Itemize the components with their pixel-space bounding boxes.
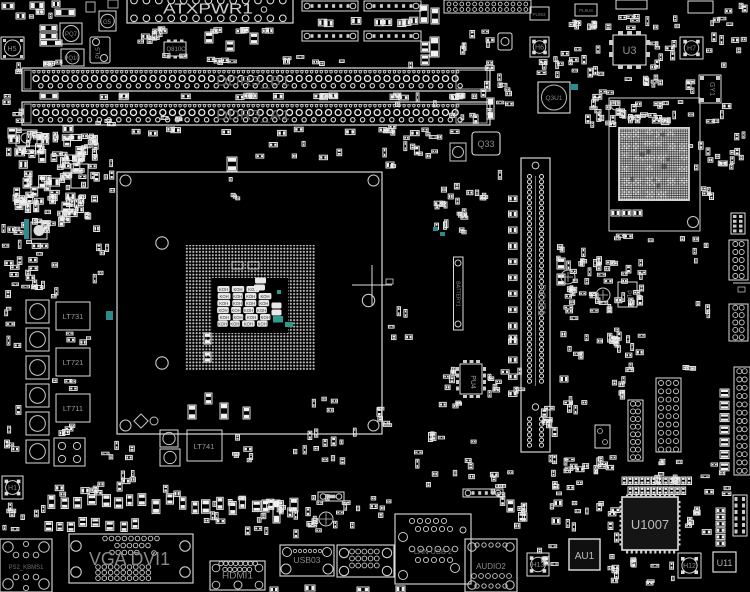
svg-text:KOH: KOH — [246, 301, 255, 306]
svg-text:PL993: PL993 — [532, 12, 546, 17]
svg-text:KOH: KOH — [258, 321, 267, 326]
svg-text:Q3U1: Q3U1 — [546, 95, 563, 102]
svg-text:H13: H13 — [532, 562, 545, 569]
svg-text:HDMI1: HDMI1 — [222, 571, 253, 581]
svg-text:KOH: KOH — [247, 315, 256, 320]
svg-text:KOH: KOH — [244, 321, 253, 326]
svg-text:U11: U11 — [717, 558, 733, 568]
svg-text:KOH: KOH — [230, 321, 239, 326]
svg-text:PL9U8: PL9U8 — [579, 8, 593, 13]
svg-text:USB03: USB03 — [294, 555, 321, 565]
svg-text:LAN USB 2: LAN USB 2 — [414, 547, 452, 556]
svg-text:KOH: KOH — [259, 301, 268, 306]
svg-text:GY1: GY1 — [708, 82, 715, 96]
svg-text:AUDIO2: AUDIO2 — [476, 562, 506, 571]
svg-text:KOH: KOH — [233, 287, 242, 292]
svg-text:KOH: KOH — [233, 294, 242, 299]
svg-text:KOH: KOH — [233, 301, 242, 306]
svg-text:H7: H7 — [687, 46, 696, 53]
svg-text:KOH: KOH — [219, 301, 228, 306]
svg-text:LT731: LT731 — [63, 312, 84, 321]
svg-text:KOH: KOH — [244, 308, 253, 313]
svg-text:PS2_KBMS1: PS2_KBMS1 — [8, 565, 44, 571]
svg-text:Q810C: Q810C — [166, 47, 186, 53]
svg-text:H6: H6 — [535, 45, 544, 52]
svg-text:KOH: KOH — [261, 315, 270, 320]
svg-text:PQ10: PQ10 — [64, 56, 80, 62]
svg-text:LT711: LT711 — [63, 404, 83, 413]
svg-text:KOH: KOH — [218, 321, 227, 326]
svg-text:PU4: PU4 — [469, 375, 476, 389]
svg-text:KOH: KOH — [257, 308, 266, 313]
svg-text:U3: U3 — [622, 45, 636, 57]
svg-text:KOH: KOH — [260, 294, 269, 299]
svg-text:BATTERY1: BATTERY1 — [455, 281, 461, 307]
svg-text:H5: H5 — [8, 46, 17, 53]
svg-text:PCIE1: PCIE1 — [535, 284, 547, 316]
svg-text:KOH: KOH — [233, 315, 242, 320]
svg-text:ATXPWR1: ATXPWR1 — [163, 1, 253, 18]
svg-text:KOH: KOH — [220, 315, 229, 320]
svg-text:VGA DVI1: VGA DVI1 — [89, 549, 170, 569]
svg-text:DDR3_A1: DDR3_A1 — [216, 107, 290, 123]
svg-text:KOH: KOH — [220, 294, 229, 299]
svg-text:H1: H1 — [8, 485, 17, 492]
svg-text:KOH: KOH — [232, 308, 241, 313]
svg-text:H12: H12 — [683, 563, 696, 570]
svg-text:PL5: PL5 — [95, 47, 102, 59]
svg-text:U1007: U1007 — [631, 517, 669, 532]
svg-text:LT741: LT741 — [194, 442, 215, 451]
svg-text:PQ7: PQ7 — [65, 32, 78, 38]
svg-text:KOH: KOH — [246, 294, 255, 299]
svg-text:Q33: Q33 — [477, 139, 494, 149]
svg-text:AU1: AU1 — [575, 551, 595, 562]
svg-text:KOH: KOH — [219, 287, 228, 292]
svg-text:DDR3_B1: DDR3_B1 — [216, 73, 290, 89]
svg-text:PL4: PL4 — [625, 290, 632, 302]
svg-text:LT721: LT721 — [63, 358, 84, 367]
svg-text:G5: G5 — [103, 20, 112, 26]
svg-text:KOH: KOH — [218, 308, 227, 313]
